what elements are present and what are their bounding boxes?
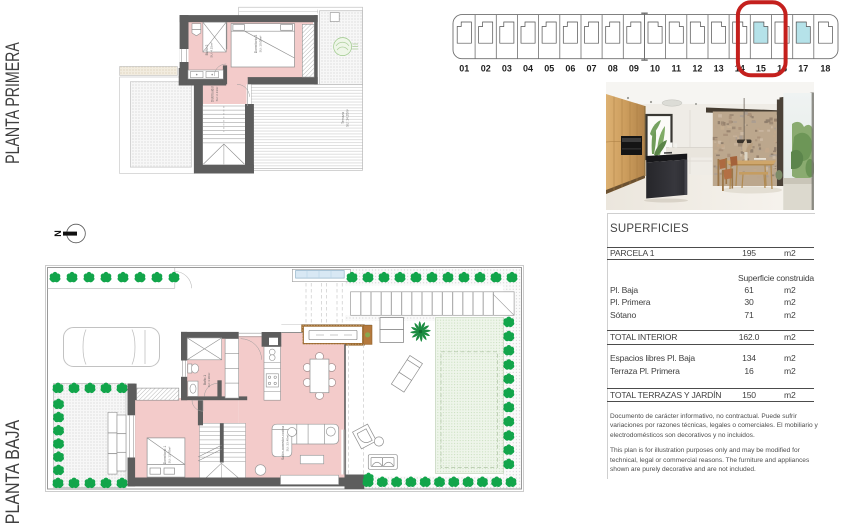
svg-text:13: 13 [714, 64, 724, 74]
svg-text:SU: 33.40m²: SU: 33.40m² [286, 435, 290, 452]
svg-text:Baño 2: Baño 2 [205, 45, 209, 56]
svg-text:Distribuidor: Distribuidor [211, 85, 215, 102]
svg-text:SU: 13.70m²: SU: 13.70m² [168, 447, 172, 464]
svg-text:Terraza: Terraza [341, 112, 345, 124]
svg-text:02: 02 [481, 64, 491, 74]
svg-text:07: 07 [586, 64, 596, 74]
svg-text:09: 09 [629, 64, 639, 74]
svg-text:17: 17 [798, 64, 808, 74]
svg-text:N: N [53, 230, 63, 237]
svg-text:SU: 4.15m²: SU: 4.15m² [210, 42, 214, 57]
svg-text:SU: 10.00m²: SU: 10.00m² [259, 36, 263, 53]
svg-text:04: 04 [523, 64, 533, 74]
svg-text:11: 11 [671, 64, 681, 74]
svg-text:SU: 3.90m²: SU: 3.90m² [207, 373, 211, 388]
svg-text:08: 08 [608, 64, 618, 74]
svg-text:Dormitorio 1: Dormitorio 1 [163, 446, 167, 465]
svg-text:SU: 14.20m²: SU: 14.20m² [346, 109, 350, 127]
svg-text:15: 15 [756, 64, 766, 74]
svg-text:03: 03 [502, 64, 512, 74]
svg-text:18: 18 [820, 64, 830, 74]
svg-text:Dormitorio 2: Dormitorio 2 [254, 35, 258, 54]
svg-text:SU: 2.13m²: SU: 2.13m² [215, 87, 219, 102]
svg-text:12: 12 [692, 64, 702, 74]
svg-text:Salón-comedor-cocina: Salón-comedor-cocina [281, 426, 285, 460]
svg-text:05: 05 [544, 64, 554, 74]
svg-text:01: 01 [459, 64, 469, 74]
svg-text:06: 06 [565, 64, 575, 74]
svg-text:10: 10 [650, 64, 660, 74]
